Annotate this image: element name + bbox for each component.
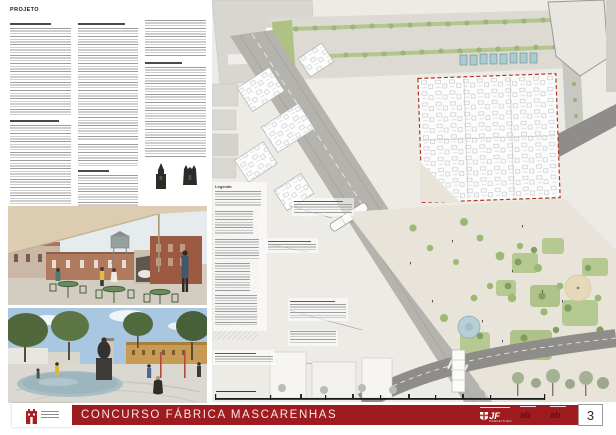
lot-label (214, 388, 258, 395)
illegible-paragraph (145, 20, 206, 58)
illegible-paragraph (10, 125, 71, 209)
masterplan-drawing (212, 0, 616, 402)
legend-entries (215, 295, 257, 325)
illegible-heading (145, 62, 181, 64)
legend-entries (215, 191, 261, 207)
illegible-heading (10, 120, 59, 122)
illegible-paragraph (78, 144, 139, 166)
illegible-paragraph (78, 28, 139, 140)
plan-annotation (266, 238, 318, 253)
competition-board: PROJETO (0, 0, 616, 435)
competition-logo-box (12, 403, 72, 427)
plan-annotation (288, 298, 348, 321)
jf-shield-icon (480, 412, 488, 422)
text-column-2 (78, 20, 139, 208)
illegible-paragraph (10, 28, 71, 116)
illegible-paragraph (78, 175, 139, 209)
iab-logo: ab (550, 409, 561, 421)
legend-title: Legenda (215, 184, 265, 189)
section-title: PROJETO (10, 7, 39, 13)
tower-sketches (145, 163, 206, 189)
plan-annotation (292, 198, 354, 216)
footer-banner: CONCURSO FÁBRICA MASCARENHAS JF PREFEITU… (72, 405, 578, 425)
legend-entries (215, 211, 253, 235)
church-tower-sketch-icon (152, 163, 170, 189)
competition-title: CONCURSO FÁBRICA MASCARENHAS (81, 405, 337, 425)
lattice-structure (452, 350, 465, 392)
illegible-paragraph (145, 67, 206, 159)
monument-sketch-icon (180, 163, 200, 185)
text-column-3 (145, 20, 206, 208)
legend-entries (215, 263, 250, 291)
legend-entries (215, 239, 259, 259)
illegible-heading (10, 23, 51, 25)
illegible-heading (78, 23, 125, 25)
logo-caption-lines (41, 411, 59, 420)
logo-caption-bar (520, 406, 536, 407)
page-number-box: 3 (578, 404, 603, 426)
plan-annotation (213, 350, 275, 365)
plan-annotation (288, 330, 338, 346)
iab-logo: ab (520, 409, 531, 421)
logo-caption-bar (550, 406, 566, 407)
castle-logo-icon (25, 407, 38, 424)
jf-prefeitura-logo: JF PREFEITURA (480, 406, 514, 424)
render-photo-fountain-plaza (8, 308, 207, 403)
render-photo-courtyard-cafe (8, 206, 207, 305)
text-columns (10, 20, 206, 208)
page-number: 3 (587, 408, 594, 423)
parked-vehicle (138, 270, 152, 278)
illegible-heading (78, 170, 110, 172)
plan-legend: Legenda (213, 182, 267, 331)
text-column-1 (10, 20, 71, 208)
